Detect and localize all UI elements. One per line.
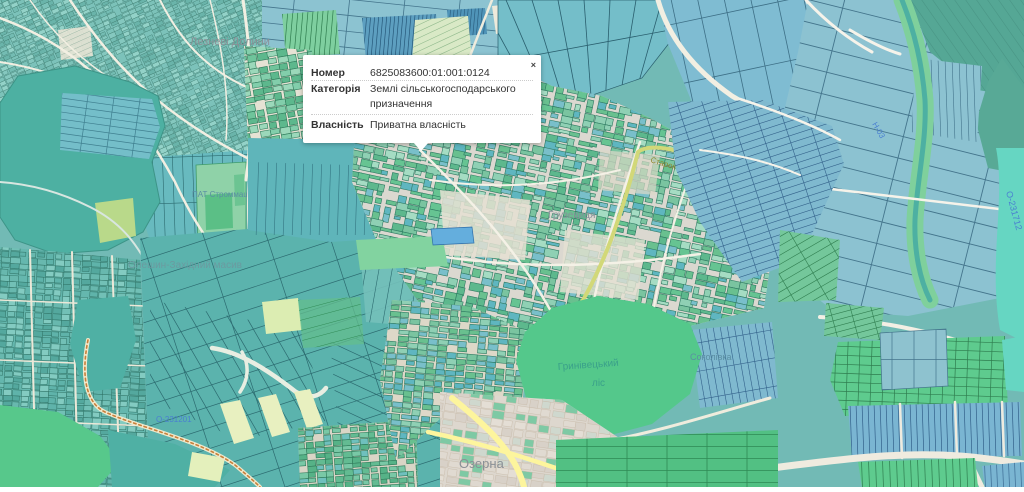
svg-text:ліс: ліс xyxy=(592,378,605,389)
svg-text:О-231201: О-231201 xyxy=(156,415,192,424)
